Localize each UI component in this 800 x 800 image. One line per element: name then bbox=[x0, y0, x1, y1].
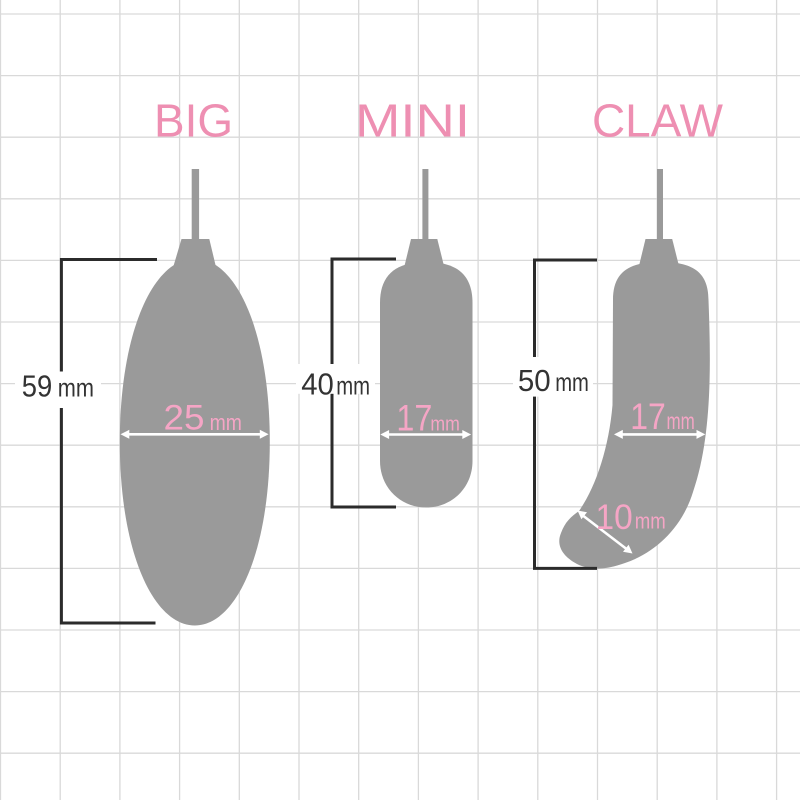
svg-text:17: 17 bbox=[396, 398, 432, 439]
svg-text:59: 59 bbox=[22, 369, 53, 404]
svg-text:mm: mm bbox=[210, 410, 242, 435]
svg-text:MINI: MINI bbox=[355, 95, 470, 147]
svg-text:CLAW: CLAW bbox=[592, 95, 723, 147]
svg-text:40: 40 bbox=[301, 366, 334, 401]
svg-text:50: 50 bbox=[518, 363, 551, 398]
svg-text:10: 10 bbox=[596, 498, 633, 537]
svg-text:mm: mm bbox=[555, 367, 589, 397]
svg-text:mm: mm bbox=[667, 408, 695, 434]
svg-text:17: 17 bbox=[630, 396, 666, 437]
svg-text:25: 25 bbox=[164, 398, 205, 437]
svg-text:mm: mm bbox=[336, 370, 370, 400]
svg-text:mm: mm bbox=[430, 414, 460, 436]
svg-text:BIG: BIG bbox=[154, 95, 233, 147]
svg-text:mm: mm bbox=[58, 373, 94, 403]
svg-text:mm: mm bbox=[635, 509, 666, 534]
